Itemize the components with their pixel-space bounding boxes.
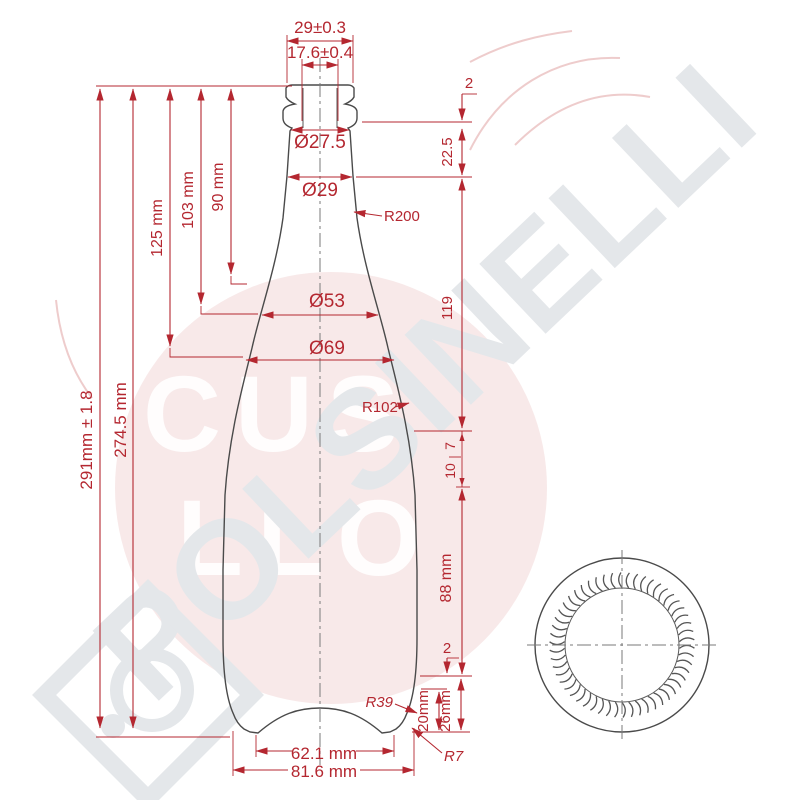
dim-dia53: Ø53 — [262, 291, 378, 315]
dim-label-d69: Ø69 — [309, 338, 345, 359]
dim-left-heights: 291mm ± 1.8 274.5 mm 125 mm 103 mm 90 mm — [77, 86, 292, 737]
dim-label-mouth-inner: 17.6±0.4 — [287, 43, 353, 62]
bottom-view — [527, 550, 717, 742]
dim-label-d275: Ø27.5 — [294, 132, 346, 153]
dim-label-r200: R200 — [384, 208, 420, 225]
dim-label-d53: Ø53 — [309, 291, 345, 312]
dim-label-2-top: 2 — [465, 75, 473, 92]
dim-label-mouth-outer: 29±0.3 — [294, 18, 346, 37]
leader-line — [395, 704, 417, 713]
jog-line — [201, 306, 258, 314]
dim-label-2745: 274.5 mm — [111, 382, 130, 458]
dim-label-225: 22.5 — [439, 137, 456, 166]
dim-neck: Ø29 — [288, 177, 472, 201]
dim-label-621: 62.1 mm — [291, 744, 357, 763]
dim-label-r39: R39 — [365, 694, 393, 711]
dim-dia69: Ø69 — [246, 338, 394, 360]
dim-label-20: 20mm — [415, 690, 432, 732]
drawing-page: CUS LLO POLSINELLI — [0, 0, 800, 800]
dim-label-2-bottom: 2 — [443, 640, 451, 657]
dim-label-26: 26mm — [437, 690, 454, 732]
dim-label-90: 90 mm — [210, 163, 227, 212]
mini-arrow-down — [459, 478, 464, 486]
dim-neck-under-crown: Ø27.5 — [291, 130, 349, 153]
leader-line — [354, 212, 382, 216]
dim-label-816: 81.6 mm — [291, 762, 357, 781]
technical-drawing-svg: 29±0.3 17.6±0.4 Ø27.5 Ø29 R200 Ø53 — [0, 0, 800, 800]
dim-label-103: 103 mm — [180, 171, 197, 229]
dim-label-r7: R7 — [444, 748, 464, 765]
dim-label-total-height: 291mm ± 1.8 — [77, 390, 96, 489]
dim-label-10: 10 — [442, 463, 458, 479]
mini-arrow-up — [459, 433, 464, 441]
jog-line — [170, 348, 243, 357]
dim-label-d29: Ø29 — [302, 180, 338, 201]
jog-line — [231, 276, 247, 284]
dim-shoulder-radius: R200 — [354, 208, 420, 225]
dim-label-7: 7 — [442, 442, 458, 450]
dim-label-125: 125 mm — [149, 199, 166, 257]
dim-label-88: 88 mm — [438, 554, 455, 603]
dim-base-widths: 62.1 mm 81.6 mm — [233, 728, 414, 781]
dim-label-r102: R102 — [362, 399, 398, 416]
dim-label-119: 119 — [439, 296, 456, 320]
